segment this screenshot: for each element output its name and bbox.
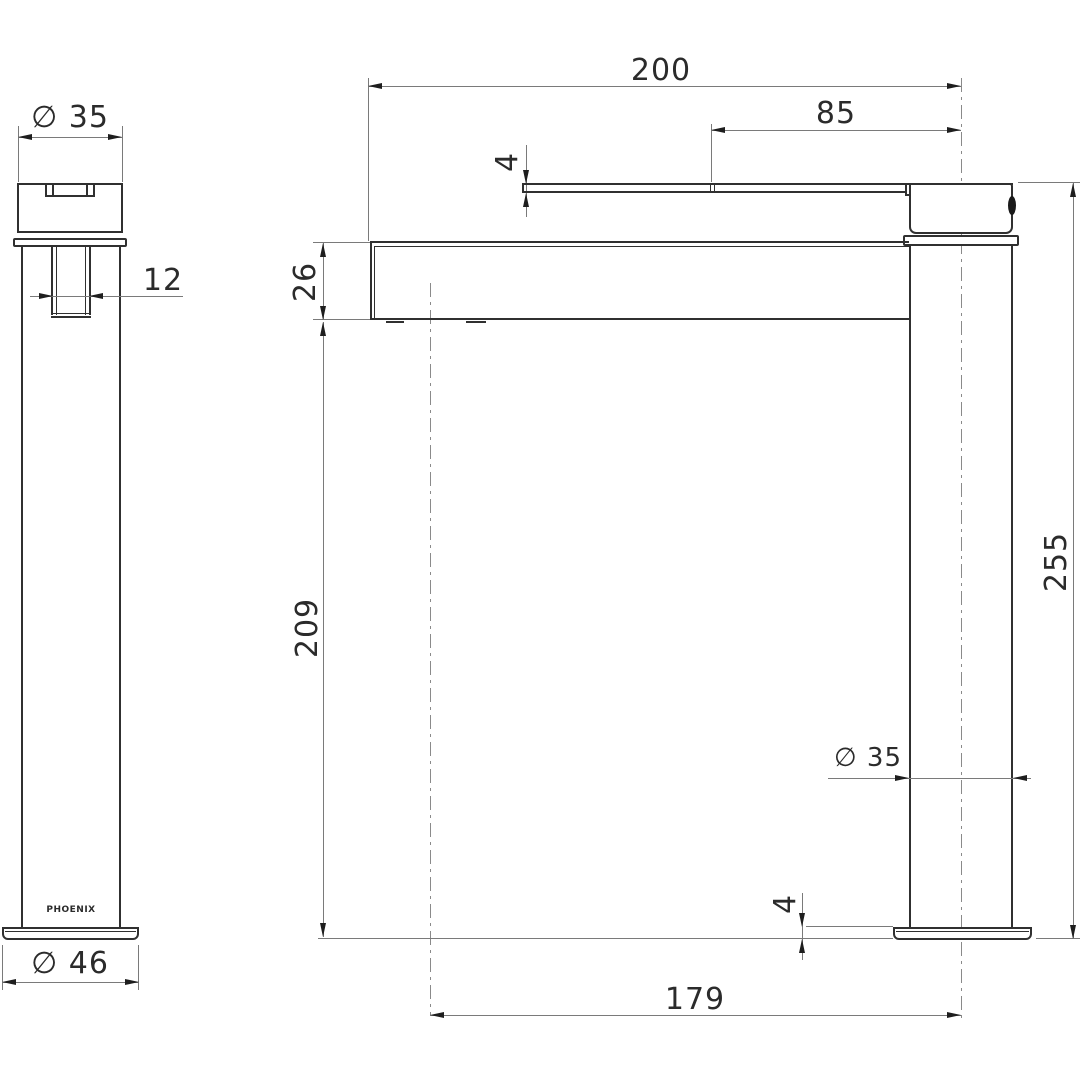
pillar-edge: [909, 246, 911, 927]
arrowhead: [799, 939, 805, 953]
arrowhead: [895, 775, 909, 781]
aerator-mark: [386, 321, 404, 323]
aerator-mark: [466, 321, 486, 323]
arrowhead: [2, 979, 16, 985]
arrowhead: [39, 293, 53, 299]
extension-line: [368, 78, 369, 241]
arrowhead: [1070, 925, 1076, 939]
base-flange-front: [893, 927, 1032, 940]
dimension-line: [2, 982, 139, 983]
lever-slot-edge: [56, 247, 57, 315]
spout-end: [370, 241, 372, 320]
lever-slot-edge: [85, 247, 86, 315]
spout-top: [370, 241, 909, 243]
spout-bottom: [370, 318, 911, 320]
object-line: [86, 183, 88, 197]
arrowhead: [947, 83, 961, 89]
edge-detail-arc: [1008, 196, 1016, 215]
handle-diameter-label: ∅ 35: [20, 101, 120, 135]
extension-line: [122, 126, 123, 182]
body-collar: [903, 235, 1019, 246]
spout-top-inner: [374, 246, 909, 247]
extension-line: [806, 926, 893, 927]
brand-label: PHOENIX: [44, 906, 98, 915]
spout-depth-label: 26: [291, 252, 321, 312]
extension-line: [318, 938, 893, 939]
overall-projection-label: 200: [616, 54, 706, 88]
lever-joint-line: [714, 183, 715, 193]
arrowhead: [947, 127, 961, 133]
object-line: [5, 931, 136, 932]
lever-slot-edge: [89, 247, 91, 315]
lever-joint-line: [710, 183, 711, 193]
dimension-line: [18, 137, 122, 138]
arrowhead: [523, 170, 529, 184]
body-diameter-label: ∅ 35: [818, 743, 918, 773]
lever-slot-edge: [51, 247, 53, 315]
arrowhead: [947, 1012, 961, 1018]
arrowhead: [368, 83, 382, 89]
body-column-edge: [119, 247, 121, 927]
arrowhead: [1070, 183, 1076, 197]
aerator-centerline: [430, 283, 431, 1015]
handle-length-label: 85: [801, 97, 871, 131]
spout-end-inner: [374, 246, 375, 318]
base-thickness-label: 4: [771, 889, 801, 919]
object-line: [52, 183, 54, 197]
arrowhead: [125, 979, 139, 985]
base-diameter-label: ∅ 46: [20, 947, 120, 981]
lever-slot-bottom: [51, 316, 91, 318]
handle-collar: [13, 238, 127, 247]
arrowhead: [320, 322, 326, 336]
dimension-line: [828, 778, 1031, 779]
cartridge-housing: [909, 183, 1013, 234]
arrowhead: [523, 193, 529, 207]
body-column-edge: [21, 247, 23, 927]
arrowhead: [1013, 775, 1027, 781]
arrowhead: [320, 923, 326, 937]
spout-clearance-label: 209: [293, 588, 323, 668]
spout-reach-label: 179: [655, 983, 735, 1017]
overall-height-label: 255: [1042, 522, 1072, 602]
handle-thickness-label: 4: [493, 147, 523, 177]
slot-width-label: 12: [133, 265, 193, 297]
dimension-drawing: ∅ 35 12 PHOENIX ∅ 46: [0, 0, 1080, 1080]
lever-slot-bottom: [51, 313, 91, 314]
arrowhead: [430, 1012, 444, 1018]
pillar-edge: [1011, 246, 1013, 927]
arrowhead: [89, 293, 103, 299]
lever-handle-end: [522, 183, 524, 193]
arrowhead: [711, 127, 725, 133]
object-line: [896, 931, 1029, 932]
base-flange: [2, 927, 139, 940]
